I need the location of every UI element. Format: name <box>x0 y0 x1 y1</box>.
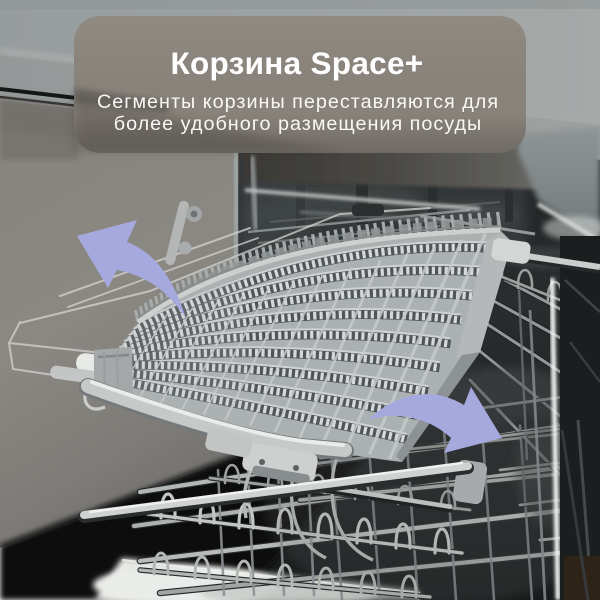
svg-text:Корзина Space+: Корзина Space+ <box>170 45 423 81</box>
svg-text:Сегменты корзины переставляютс: Сегменты корзины переставляются для <box>97 91 499 113</box>
svg-text:более удобного размещения посу: более удобного размещения посуды <box>114 113 483 135</box>
